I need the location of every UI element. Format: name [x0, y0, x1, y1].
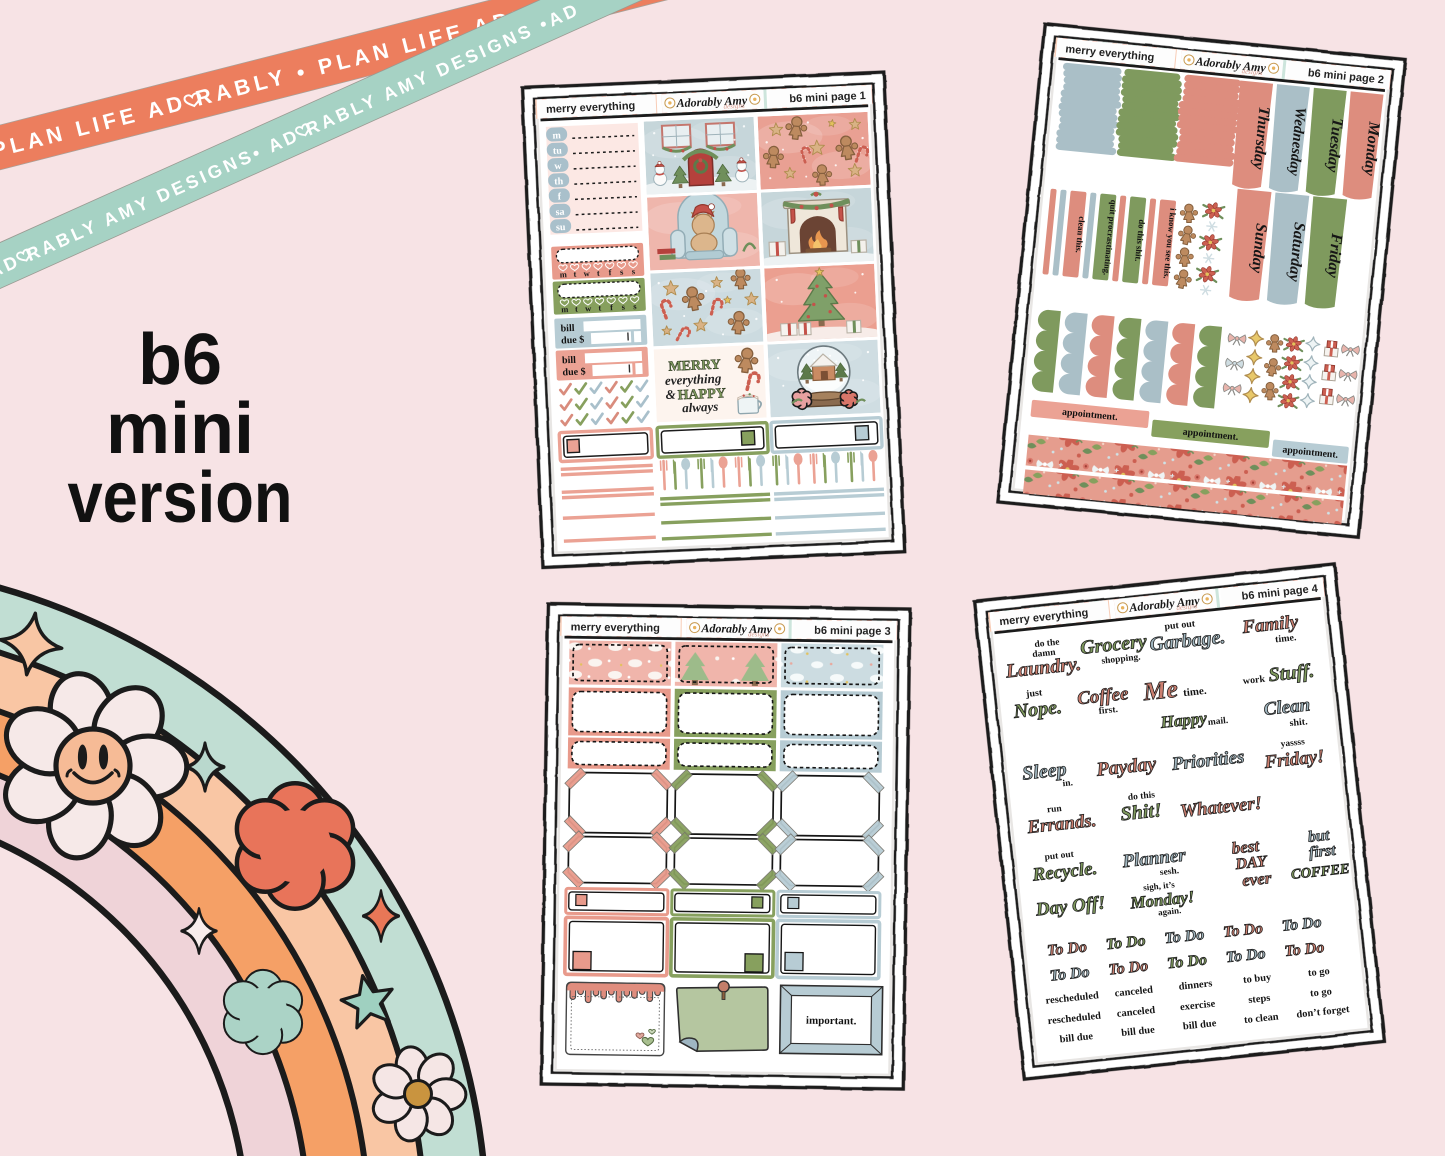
- svg-text:steps: steps: [1248, 993, 1271, 1006]
- svg-text:f: f: [610, 302, 613, 312]
- svg-text:sesh.: sesh.: [1159, 866, 1179, 878]
- svg-text:bill: bill: [560, 323, 575, 335]
- svg-text:b6: b6: [138, 320, 222, 400]
- svg-text:always: always: [682, 399, 719, 416]
- svg-text:Sleep: Sleep: [1021, 758, 1068, 784]
- svg-text:due $: due $: [562, 366, 586, 378]
- svg-text:f: f: [608, 267, 611, 277]
- svg-text:sa: sa: [555, 207, 564, 218]
- svg-text:to go: to go: [1310, 986, 1333, 999]
- svg-text:b6 mini page 3: b6 mini page 3: [814, 625, 891, 638]
- svg-text:designs: designs: [748, 630, 769, 638]
- svg-text:Shit!: Shit!: [1120, 799, 1163, 825]
- svg-text:version: version: [68, 458, 293, 538]
- svg-text:mini: mini: [106, 389, 254, 469]
- svg-text:ever: ever: [1241, 868, 1272, 890]
- svg-text:m: m: [552, 130, 561, 141]
- svg-text:mail.: mail.: [1207, 716, 1228, 728]
- svg-text:m: m: [561, 304, 569, 314]
- svg-text:shit.: shit.: [1289, 716, 1309, 729]
- svg-text:th: th: [554, 176, 564, 187]
- svg-text:due $: due $: [561, 334, 585, 346]
- svg-text:&: &: [665, 387, 676, 402]
- svg-text:m: m: [559, 269, 567, 279]
- svg-text:everything: everything: [665, 370, 722, 387]
- svg-text:time.: time.: [1275, 632, 1298, 645]
- svg-text:su: su: [556, 222, 566, 233]
- svg-text:designs: designs: [723, 102, 745, 111]
- svg-text:Me: Me: [1141, 674, 1179, 706]
- svg-text:in.: in.: [1062, 778, 1073, 789]
- svg-text:important.: important.: [806, 1015, 857, 1028]
- svg-text:bill: bill: [562, 355, 577, 367]
- svg-text:first: first: [1308, 842, 1337, 862]
- svg-text:merry everything: merry everything: [571, 621, 660, 634]
- svg-text:first.: first.: [1098, 705, 1118, 717]
- svg-text:time.: time.: [1183, 685, 1208, 699]
- svg-text:tu: tu: [553, 146, 563, 157]
- svg-text:to go: to go: [1307, 966, 1330, 979]
- svg-text:w: w: [554, 161, 562, 172]
